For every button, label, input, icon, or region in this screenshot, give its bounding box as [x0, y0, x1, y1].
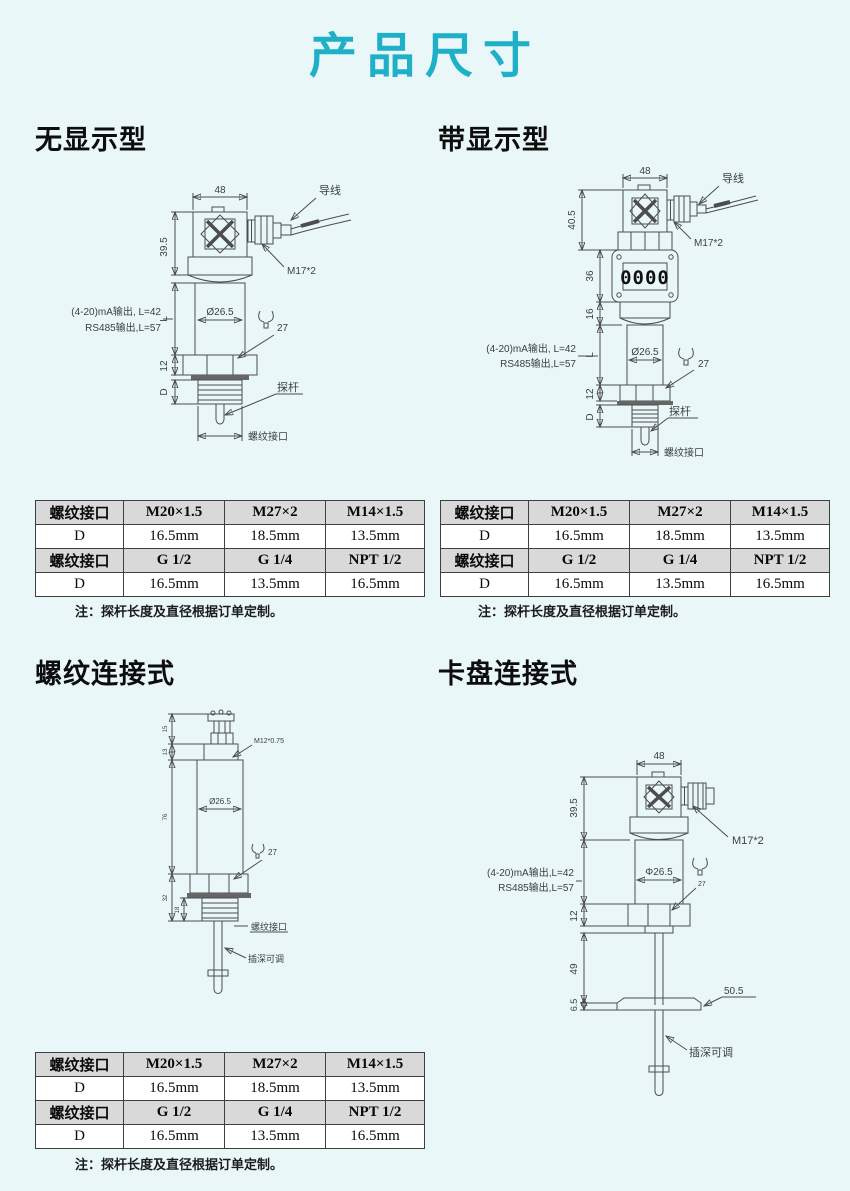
cell: 16.5mm [529, 573, 630, 597]
cell: M27×2 [225, 501, 326, 525]
cell: 16.5mm [124, 525, 225, 549]
cell: M20×1.5 [529, 501, 630, 525]
cell: M14×1.5 [326, 1053, 425, 1077]
dim-12: 12 [569, 910, 580, 922]
diameter-label: Ø26.5 [206, 307, 234, 318]
cell: 螺纹接口 [441, 549, 529, 573]
cell: NPT 1/2 [326, 1101, 425, 1125]
cell: 13.5mm [326, 1077, 425, 1101]
cell: 16.5mm [124, 1125, 225, 1149]
dim-39-5: 39.5 [569, 798, 580, 818]
table-note: 注：探杆长度及直径根据订单定制。 [75, 1154, 283, 1173]
cell: 18.5mm [225, 525, 326, 549]
cell: 13.5mm [225, 573, 326, 597]
section-heading-chuck: 卡盘连接式 [438, 652, 578, 691]
cell: D [36, 525, 124, 549]
dim-6-5: 6.5 [569, 999, 579, 1012]
table-note: 注：探杆长度及直径根据订单定制。 [478, 601, 686, 620]
output-line-1: (4-20)mA输出, L=42 [71, 305, 161, 318]
cell: D [441, 573, 529, 597]
cell: 16.5mm [529, 525, 630, 549]
cell: 螺纹接口 [36, 1053, 124, 1077]
hex-dim-27: 27 [698, 359, 710, 370]
m12-thread-label: M12*0.75 [254, 738, 284, 745]
section-heading-no-display: 无显示型 [35, 118, 147, 157]
cell: G 1/4 [630, 549, 731, 573]
cell: G 1/4 [225, 549, 326, 573]
wire-label: 导线 [319, 183, 341, 197]
section-heading-with-display: 带显示型 [438, 118, 550, 157]
lcd-display: 0000 [620, 267, 670, 289]
dim-48: 48 [653, 751, 665, 762]
technical-drawing-no-display: 48 导线 M17*2 39.5 L 12 D (4-20)mA输出, L=42… [55, 163, 415, 463]
insertion-depth-label: 插深可调 [248, 953, 284, 964]
probe-label: 探杆 [277, 380, 299, 394]
cell: M20×1.5 [124, 501, 225, 525]
cell: 18.5mm [630, 525, 731, 549]
section-heading-threaded: 螺纹连接式 [35, 652, 175, 691]
dim-L: L [585, 352, 596, 358]
dim-a: 15 [163, 725, 169, 732]
cell: 18.5mm [225, 1077, 326, 1101]
cell: G 1/2 [124, 1101, 225, 1125]
probe-label: 探杆 [669, 404, 691, 418]
cell: NPT 1/2 [326, 549, 425, 573]
m17-label: M17*2 [694, 238, 723, 249]
table-note: 注：探杆长度及直径根据订单定制。 [75, 601, 283, 620]
output-line-2: RS485输出,L=57 [500, 357, 576, 370]
cell: 16.5mm [731, 573, 830, 597]
dim-e: 32 [163, 894, 169, 901]
dim-D: D [159, 388, 170, 395]
output-line-2: RS485输出,L=57 [498, 881, 574, 894]
cell: 16.5mm [124, 1077, 225, 1101]
cell: M27×2 [225, 1053, 326, 1077]
cell: M27×2 [630, 501, 731, 525]
dim-b: 13 [163, 748, 169, 755]
spec-table-no-display: 螺纹接口M20×1.5M27×2M14×1.5 D16.5mm18.5mm13.… [35, 500, 425, 597]
wire-label: 导线 [722, 171, 744, 185]
cell: 13.5mm [731, 525, 830, 549]
cell: 螺纹接口 [36, 1101, 124, 1125]
cell: 螺纹接口 [441, 501, 529, 525]
diameter-label: Φ26.5 [645, 867, 673, 878]
cell: D [36, 1077, 124, 1101]
output-line-1: (4-20)mA输出,L=42 [487, 866, 574, 879]
cell: D [36, 1125, 124, 1149]
dim-48: 48 [214, 185, 226, 196]
cell: G 1/2 [124, 549, 225, 573]
dim-39-5: 39.5 [159, 237, 170, 257]
insertion-depth-label: 插深可调 [689, 1045, 733, 1059]
cell: M14×1.5 [731, 501, 830, 525]
diameter-label: Ø26.5 [631, 347, 659, 358]
technical-drawing-chuck: 48 M17*2 39.5 (4-20)mA输出,L=42 RS485输出,L=… [460, 698, 850, 1128]
m17-label: M17*2 [732, 835, 764, 847]
hex-dim-27: 27 [268, 848, 277, 857]
technical-drawing-with-display: 0000 48 导线 M17*2 40.5 36 16 L 12 [460, 156, 850, 486]
dim-36: 36 [585, 270, 596, 282]
hex-dim-27: 27 [277, 323, 289, 334]
dim-40-5: 40.5 [567, 210, 578, 230]
spec-table-threaded: 螺纹接口M20×1.5M27×2M14×1.5 D16.5mm18.5mm13.… [35, 1052, 425, 1149]
cell: M14×1.5 [326, 501, 425, 525]
dim-12: 12 [585, 388, 596, 400]
cell: 螺纹接口 [36, 549, 124, 573]
thread-port-label: 螺纹接口 [248, 430, 288, 443]
diameter-label: Ø26.5 [209, 797, 231, 806]
technical-drawing-threaded: M12*0.75 Ø26.5 27 螺纹接口 插深可调 15 13 76 32 … [130, 702, 420, 1037]
cell: 16.5mm [124, 573, 225, 597]
dim-D: D [585, 413, 596, 420]
cell: 16.5mm [326, 573, 425, 597]
cell: NPT 1/2 [731, 549, 830, 573]
cell: 13.5mm [630, 573, 731, 597]
dim-c: 76 [163, 813, 169, 820]
cell: M20×1.5 [124, 1053, 225, 1077]
dim-12: 12 [159, 360, 170, 372]
dim-48: 48 [639, 166, 651, 177]
cell: D [36, 573, 124, 597]
m17-label: M17*2 [287, 266, 316, 277]
output-line-2: RS485输出,L=57 [85, 321, 161, 334]
cell: G 1/2 [529, 549, 630, 573]
product-dimensions-page: 产品尺寸 无显示型 带显示型 螺纹连接式 卡盘连接式 48 导线 [0, 0, 850, 1191]
thread-port-label: 螺纹接口 [664, 446, 704, 459]
cell: 13.5mm [326, 525, 425, 549]
cell: D [441, 525, 529, 549]
spec-table-with-display: 螺纹接口M20×1.5M27×2M14×1.5 D16.5mm18.5mm13.… [440, 500, 830, 597]
page-title: 产品尺寸 [0, 16, 850, 86]
cell: 螺纹接口 [36, 501, 124, 525]
thread-port-label: 螺纹接口 [251, 921, 287, 932]
cell: 16.5mm [326, 1125, 425, 1149]
dim-49: 49 [569, 963, 580, 975]
dim-50-5: 50.5 [724, 986, 744, 997]
dim-f: 18 [175, 906, 181, 913]
dim-16: 16 [585, 308, 596, 320]
hex-dim-27: 27 [698, 881, 706, 888]
output-line-1: (4-20)mA输出, L=42 [486, 342, 576, 355]
cell: G 1/4 [225, 1101, 326, 1125]
cell: 13.5mm [225, 1125, 326, 1149]
